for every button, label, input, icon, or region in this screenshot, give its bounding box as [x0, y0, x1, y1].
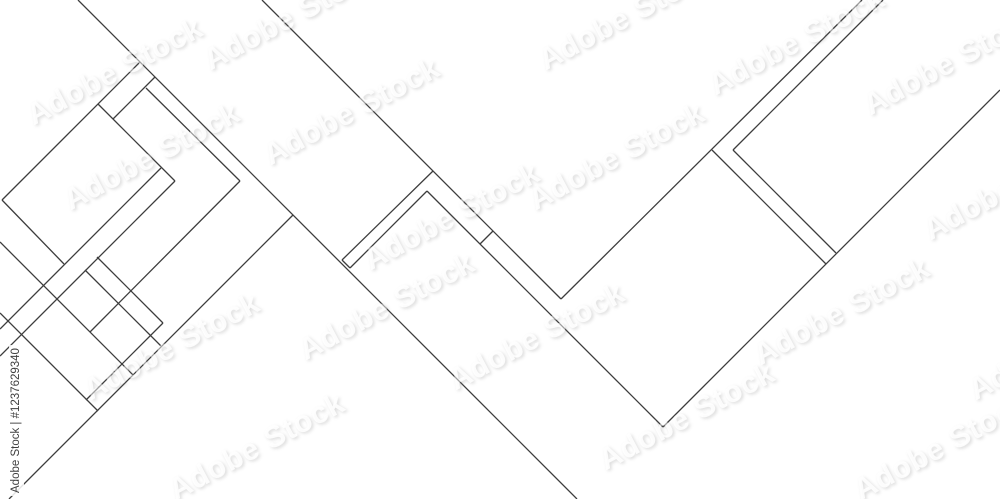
line-segment [86, 323, 163, 400]
line-segment [342, 171, 433, 260]
line-segment [342, 260, 350, 268]
line-segment [85, 270, 161, 346]
line-segment [146, 88, 240, 181]
line-segment [733, 0, 883, 150]
line-segment [712, 150, 826, 264]
line-segment [350, 191, 427, 268]
stock-artwork-canvas: Adobe StockAdobe StockAdobe StockAdobe S… [0, 0, 1000, 499]
line-segment [427, 191, 663, 427]
line-segment [98, 104, 175, 181]
line-segment [480, 231, 493, 244]
line-segment [78, 0, 577, 499]
line-segment [663, 90, 1000, 427]
line-art-svg [0, 0, 1000, 499]
stock-id-label: Adobe Stock | #1237629340 [9, 345, 24, 496]
line-segment [2, 62, 140, 200]
line-segment [2, 200, 64, 264]
line-segment [0, 168, 161, 329]
line-segment [97, 257, 163, 323]
line-segment [9, 215, 293, 499]
line-segment [733, 150, 836, 253]
line-segment [262, 0, 561, 299]
line-segment [90, 181, 240, 332]
